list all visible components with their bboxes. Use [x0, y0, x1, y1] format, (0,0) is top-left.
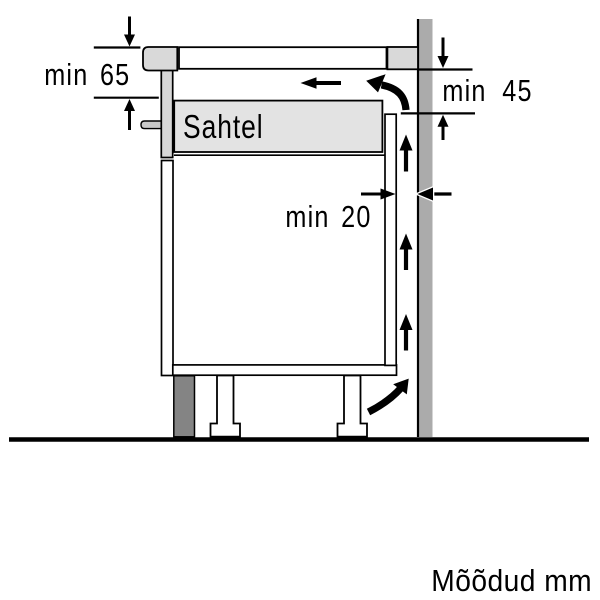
svg-text:min 20: min 20: [285, 198, 371, 233]
svg-text:min 45: min 45: [442, 72, 532, 107]
svg-text:Sahtel: Sahtel: [183, 109, 264, 145]
svg-text:Mõõdud mm: Mõõdud mm: [431, 564, 592, 599]
svg-text:min 65: min 65: [44, 57, 130, 92]
